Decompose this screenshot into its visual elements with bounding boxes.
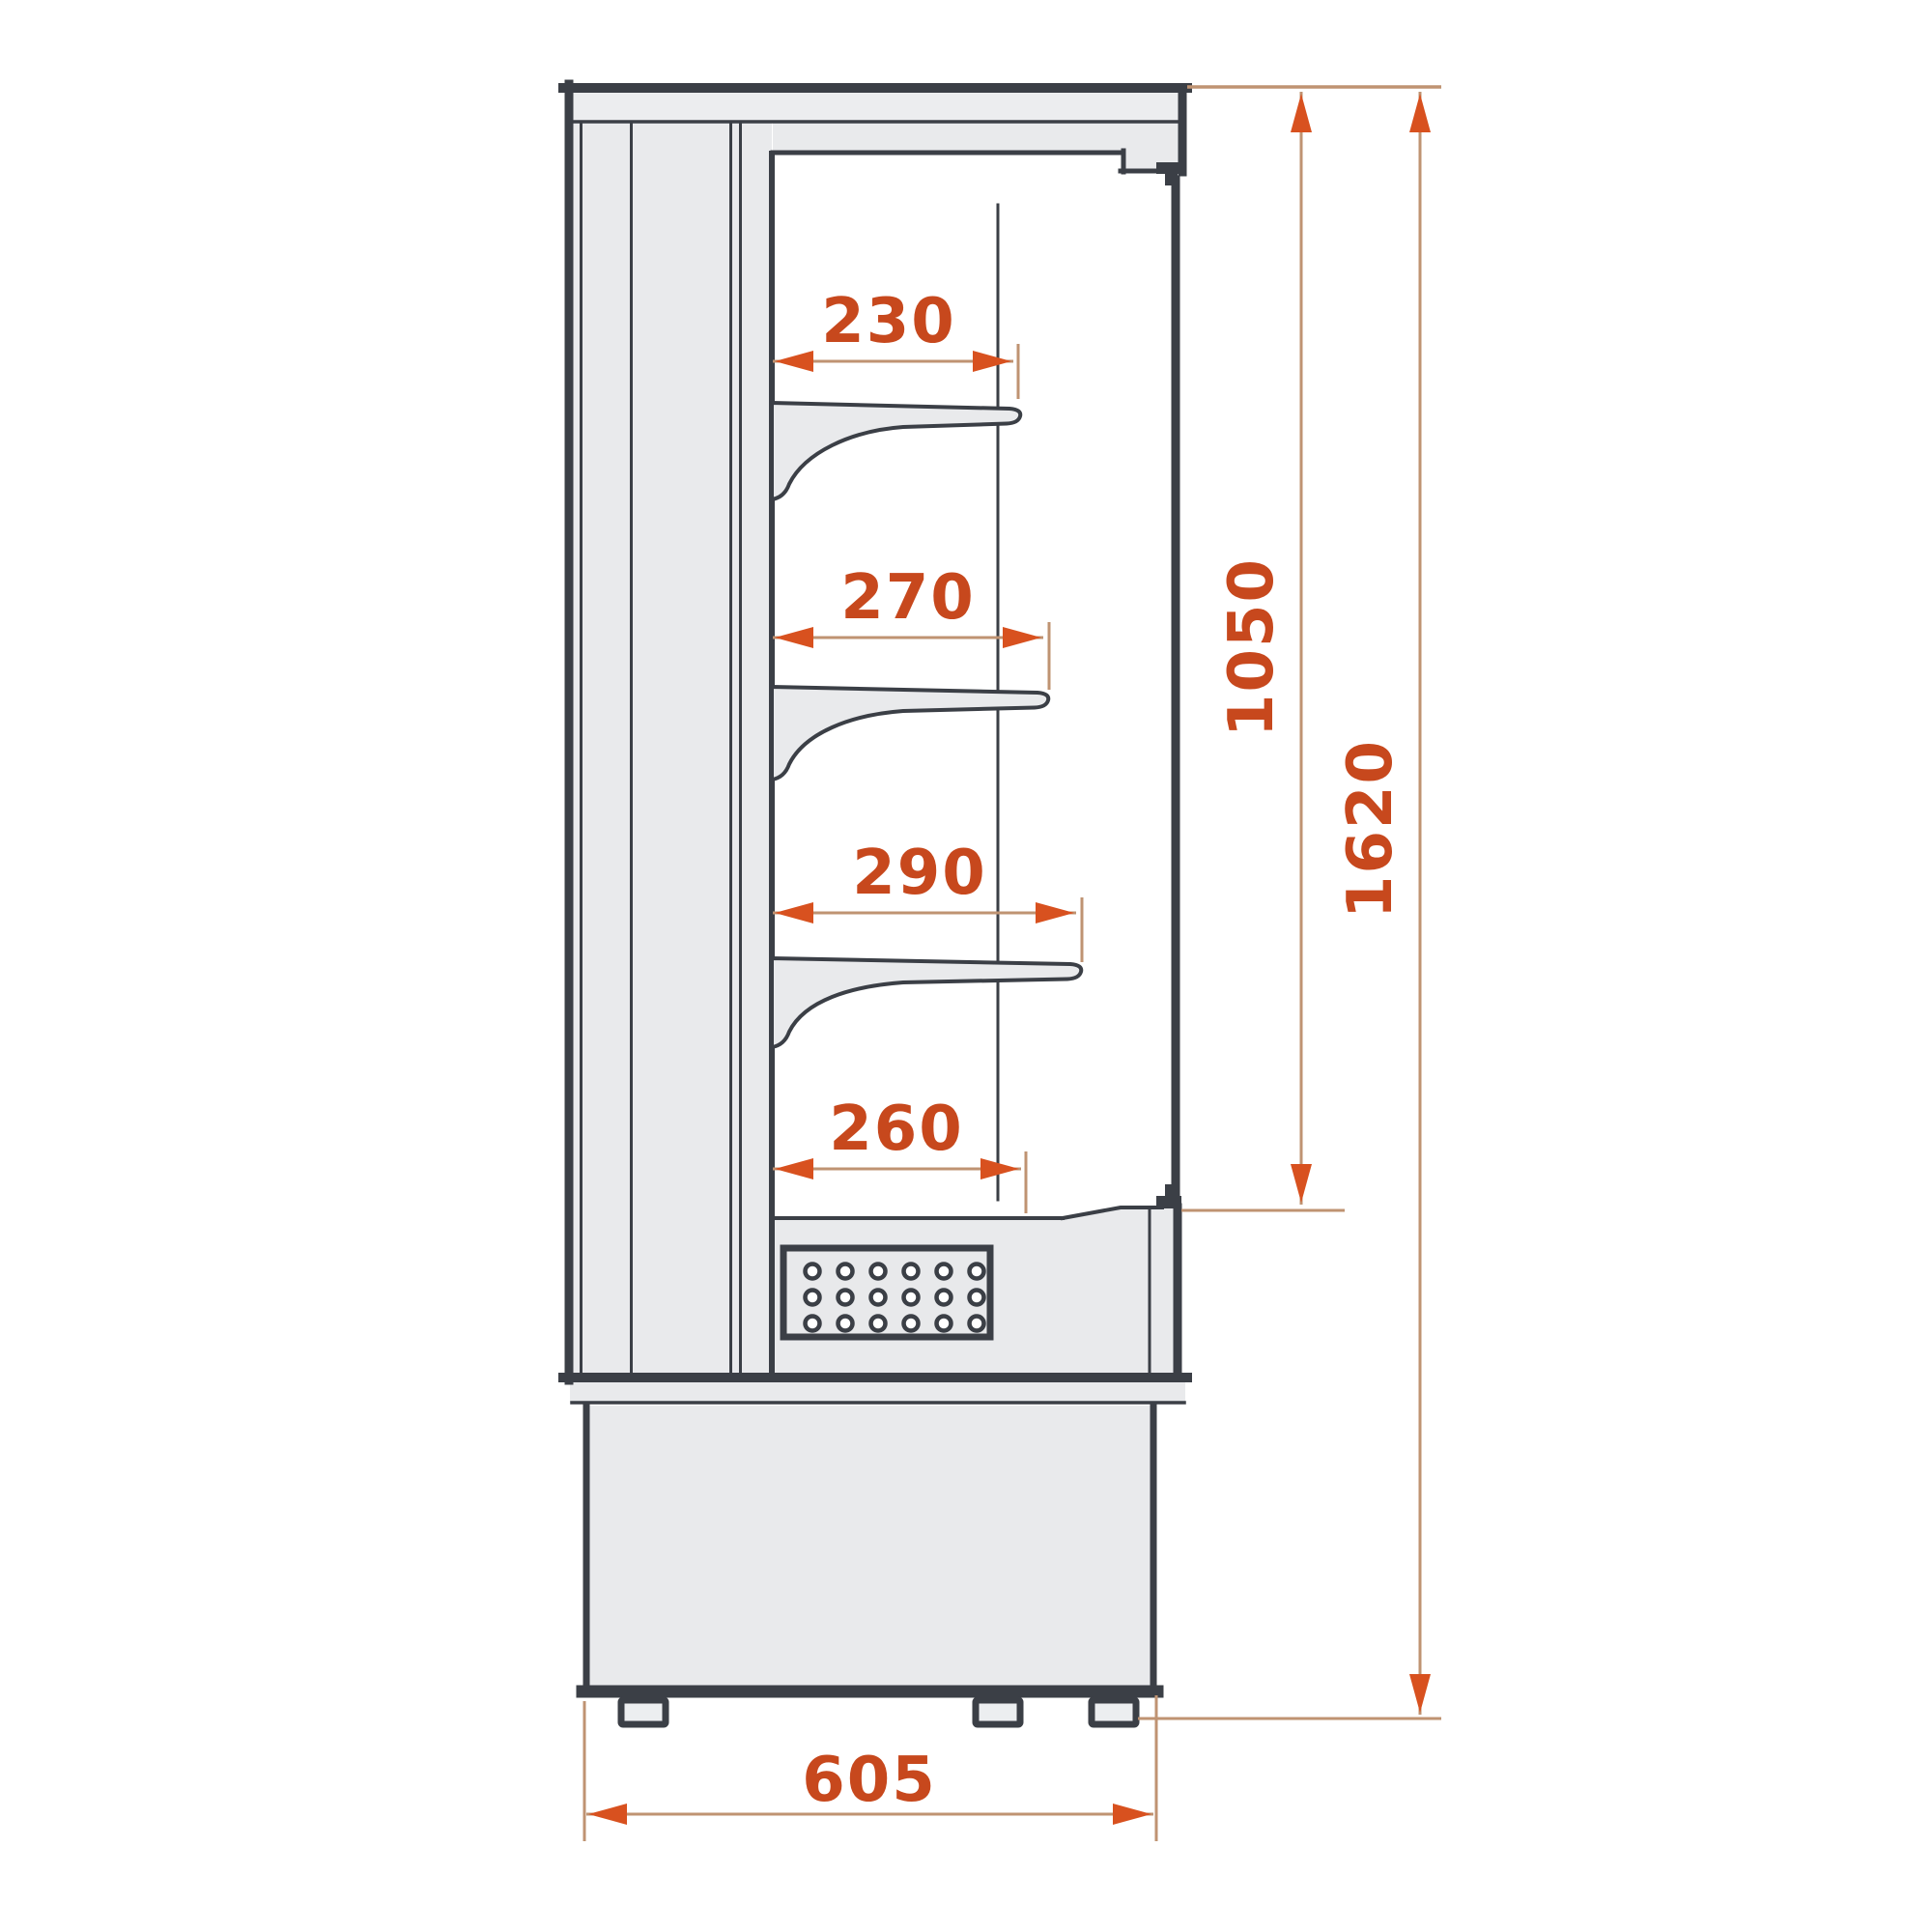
arrow-right-icon	[980, 1158, 1019, 1179]
grille-hole	[904, 1291, 919, 1305]
grille-hole	[838, 1264, 853, 1279]
grille-hole	[806, 1264, 820, 1279]
grille-hole	[904, 1317, 919, 1331]
grille-hole	[871, 1317, 886, 1331]
base-plinth-panel	[586, 1406, 1154, 1692]
technical-drawing-canvas: 230 270 290 260 1050 1620 605	[0, 0, 1932, 1932]
shelf-2	[772, 687, 1048, 780]
arrow-left-icon	[775, 351, 813, 372]
dim-label-shelf3: 290	[852, 838, 987, 909]
grille-hole	[970, 1317, 984, 1331]
foot-middle	[976, 1700, 1020, 1724]
top-cap-panel	[569, 89, 1186, 122]
arrow-right-icon	[1113, 1804, 1151, 1825]
bottom-hinge-pin	[1165, 1184, 1178, 1197]
arrow-up-icon	[1291, 94, 1312, 132]
top-hinge-pin	[1165, 174, 1178, 185]
ventilation-grille-icon	[783, 1248, 990, 1337]
arrow-left-icon	[775, 902, 813, 923]
dim-label-shelf1: 230	[821, 286, 956, 357]
bottom-hinge-icon	[1156, 1196, 1181, 1208]
dim-label-opening-height: 1050	[1216, 557, 1288, 737]
dim-label-shelf2: 270	[840, 562, 976, 634]
arrow-up-icon	[1409, 94, 1431, 132]
grille-hole	[904, 1264, 919, 1279]
shelf-3	[772, 958, 1081, 1047]
grille-hole	[937, 1291, 952, 1305]
grille-hole	[871, 1264, 886, 1279]
foot-left	[621, 1700, 666, 1724]
grille-hole	[937, 1264, 952, 1279]
foot-right	[1092, 1700, 1136, 1724]
arrow-left-icon	[588, 1804, 627, 1825]
arrow-right-icon	[973, 351, 1011, 372]
arrow-down-icon	[1409, 1674, 1431, 1713]
cabinet-side-section-drawing: 230 270 290 260 1050 1620 605	[0, 0, 1932, 1932]
arrow-left-icon	[775, 627, 813, 648]
shelf-1	[772, 403, 1020, 499]
grille-hole	[806, 1291, 820, 1305]
shelves	[772, 403, 1081, 1047]
grille-hole	[838, 1317, 853, 1331]
grille-hole	[871, 1291, 886, 1305]
arrow-right-icon	[1036, 902, 1074, 923]
arrow-right-icon	[1003, 627, 1041, 648]
grille-hole	[970, 1291, 984, 1305]
grille-hole	[806, 1317, 820, 1331]
arrow-down-icon	[1291, 1164, 1312, 1203]
arrow-left-icon	[775, 1158, 813, 1179]
dim-label-bottom-shelf: 260	[829, 1094, 964, 1165]
dim-label-base-depth: 605	[802, 1745, 937, 1816]
dim-label-total-height: 1620	[1335, 739, 1406, 919]
underside-band	[570, 1380, 1185, 1403]
grille-hole	[970, 1264, 984, 1279]
adjustable-feet	[621, 1700, 1136, 1724]
top-hinge-icon	[1156, 162, 1181, 174]
grille-hole	[838, 1291, 853, 1305]
grille-hole	[937, 1317, 952, 1331]
